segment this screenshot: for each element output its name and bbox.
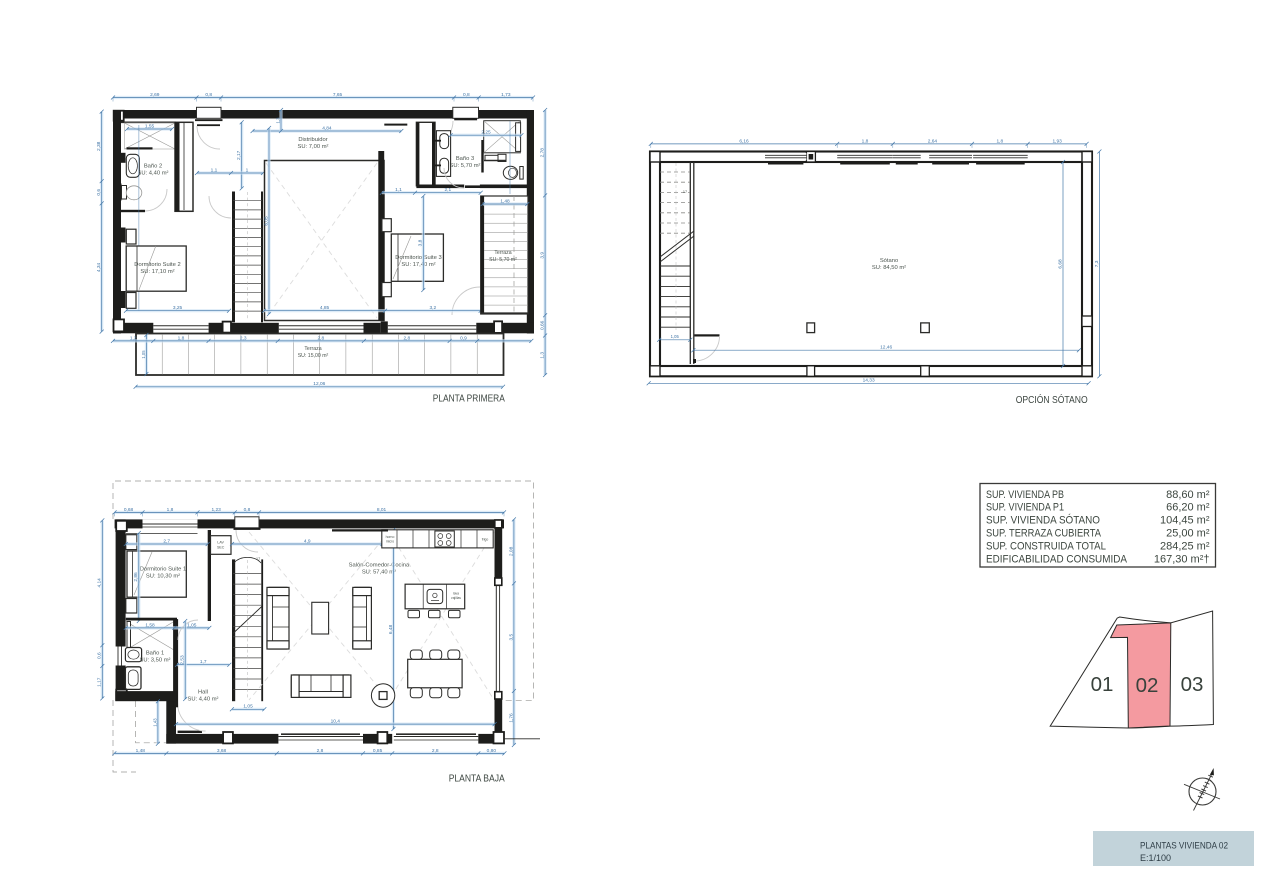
svg-text:SUP. VIVIENDA P1: SUP. VIVIENDA P1: [986, 502, 1064, 514]
svg-text:micro: micro: [386, 540, 394, 544]
svg-text:PLANTAS VIVIENDA 02: PLANTAS VIVIENDA 02: [1140, 841, 1228, 851]
svg-text:1,8: 1,8: [167, 507, 174, 513]
svg-text:1,1: 1,1: [395, 187, 402, 193]
svg-text:2,78: 2,78: [540, 148, 546, 158]
svg-text:Terraza: Terraza: [304, 346, 321, 352]
svg-text:4,14: 4,14: [97, 578, 103, 588]
svg-text:167,30 m²†: 167,30 m²†: [1154, 553, 1210, 565]
svg-text:0,8: 0,8: [205, 92, 212, 98]
svg-text:03: 03: [1181, 673, 1204, 696]
svg-text:2,1: 2,1: [445, 187, 452, 193]
svg-text:horno: horno: [386, 535, 395, 539]
svg-text:3,68: 3,68: [217, 748, 227, 754]
svg-text:1,17: 1,17: [97, 677, 103, 687]
svg-text:E:1/100: E:1/100: [1140, 853, 1171, 863]
svg-text:0,9: 0,9: [460, 335, 467, 341]
svg-text:frigo: frigo: [482, 538, 489, 542]
svg-text:01: 01: [1091, 673, 1114, 696]
svg-text:Baño 3: Baño 3: [456, 156, 474, 162]
svg-text:Dormitorio Suite 3: Dormitorio Suite 3: [395, 255, 441, 261]
svg-text:1,48: 1,48: [500, 198, 510, 204]
svg-text:1,76: 1,76: [508, 713, 514, 723]
svg-text:Dormitorio Suite 2: Dormitorio Suite 2: [134, 262, 180, 268]
svg-text:4,34: 4,34: [96, 263, 102, 273]
svg-text:3,5: 3,5: [508, 634, 514, 641]
svg-text:0,8: 0,8: [244, 507, 251, 513]
svg-text:SU: 10,30 m²: SU: 10,30 m²: [146, 574, 180, 580]
svg-text:SU: 57,40 m²: SU: 57,40 m²: [362, 570, 396, 576]
svg-text:2,86: 2,86: [133, 572, 139, 582]
svg-text:SUP. VIVIENDA SÓTANO: SUP. VIVIENDA SÓTANO: [986, 514, 1100, 527]
svg-text:SU: 4,40 m²: SU: 4,40 m²: [138, 171, 169, 177]
svg-text:SU: 17,40 m²: SU: 17,40 m²: [401, 262, 435, 268]
svg-text:SUP. TERRAZA CUBIERTA: SUP. TERRAZA CUBIERTA: [986, 528, 1102, 540]
svg-text:SU: 15,00 m²: SU: 15,00 m²: [298, 353, 329, 359]
svg-text:17: 17: [256, 557, 260, 561]
svg-text:104,45 m²: 104,45 m²: [1160, 515, 1210, 527]
svg-text:3,8: 3,8: [418, 239, 424, 246]
svg-text:2,25: 2,25: [481, 130, 491, 136]
svg-text:12,46: 12,46: [880, 345, 892, 351]
svg-text:4,85: 4,85: [320, 305, 330, 311]
svg-text:0,6: 0,6: [97, 652, 103, 659]
svg-text:SU: 3,50 m²: SU: 3,50 m²: [140, 658, 171, 664]
svg-text:Salón-Comedor-Cocina: Salón-Comedor-Cocina: [349, 563, 410, 569]
svg-text:3,25: 3,25: [173, 305, 183, 311]
svg-text:4,9: 4,9: [304, 538, 311, 544]
svg-text:14,33: 14,33: [863, 378, 875, 384]
svg-text:SUP. VIVIENDA PB: SUP. VIVIENDA PB: [986, 489, 1064, 501]
svg-text:7,65: 7,65: [333, 92, 343, 98]
svg-text:2,8: 2,8: [403, 335, 410, 341]
svg-text:SU: 84,50 m²: SU: 84,50 m²: [872, 265, 906, 271]
svg-text:OPCIÓN SÓTANO: OPCIÓN SÓTANO: [1016, 393, 1088, 406]
svg-text:2,53: 2,53: [180, 655, 186, 665]
svg-text:2,17: 2,17: [236, 150, 242, 160]
svg-text:1,23: 1,23: [211, 507, 221, 513]
svg-text:LAV: LAV: [217, 541, 224, 545]
svg-text:3,9: 3,9: [540, 252, 546, 259]
svg-text:12,06: 12,06: [313, 381, 325, 387]
svg-text:vajillas: vajillas: [451, 596, 461, 600]
svg-text:Sótano: Sótano: [880, 258, 898, 264]
svg-text:66,20 m²: 66,20 m²: [1166, 502, 1210, 514]
svg-text:1,05: 1,05: [187, 622, 197, 628]
svg-text:1: 1: [246, 167, 249, 173]
svg-text:EDIFICABILIDAD CONSUMIDA: EDIFICABILIDAD CONSUMIDA: [986, 553, 1128, 565]
svg-text:Baño 2: Baño 2: [144, 164, 162, 170]
svg-text:PLANTA BAJA: PLANTA BAJA: [449, 773, 505, 785]
svg-text:4,84: 4,84: [322, 125, 332, 131]
svg-text:SU: 7,00 m²: SU: 7,00 m²: [298, 144, 329, 150]
svg-text:6,48: 6,48: [388, 625, 394, 635]
svg-text:7,3: 7,3: [1094, 260, 1100, 267]
svg-text:SU: 4,40 m²: SU: 4,40 m²: [188, 697, 219, 703]
svg-text:1,55: 1,55: [145, 123, 155, 129]
svg-text:17: 17: [683, 190, 687, 194]
svg-text:1,8: 1,8: [862, 138, 869, 144]
svg-text:1,93: 1,93: [1052, 138, 1062, 144]
svg-text:Terraza: Terraza: [494, 250, 511, 256]
svg-text:2,8: 2,8: [432, 748, 439, 754]
svg-text:1,7: 1,7: [200, 659, 207, 665]
svg-text:2,8: 2,8: [318, 335, 325, 341]
svg-text:10,4: 10,4: [331, 719, 341, 725]
svg-text:2,64: 2,64: [928, 138, 938, 144]
svg-text:SU: 17,10 m²: SU: 17,10 m²: [140, 269, 174, 275]
svg-text:1,43: 1,43: [152, 718, 157, 727]
svg-text:1,8: 1,8: [178, 335, 185, 341]
svg-text:3,2: 3,2: [430, 305, 437, 311]
svg-text:Dormitorio Suite 1: Dormitorio Suite 1: [140, 567, 186, 573]
svg-text:0,80: 0,80: [487, 748, 497, 754]
svg-text:0,85: 0,85: [373, 748, 383, 754]
svg-text:6,68: 6,68: [1057, 259, 1063, 269]
svg-text:02: 02: [1136, 674, 1159, 697]
svg-text:1,58: 1,58: [145, 622, 155, 628]
svg-text:2,3: 2,3: [240, 335, 247, 341]
svg-text:SEC: SEC: [217, 546, 225, 550]
svg-text:0,8: 0,8: [463, 92, 470, 98]
svg-text:284,25 m²: 284,25 m²: [1160, 540, 1210, 552]
svg-text:SU: 5,70 m²: SU: 5,70 m²: [450, 163, 481, 169]
svg-text:88,60 m²: 88,60 m²: [1166, 489, 1210, 501]
svg-text:2,7: 2,7: [163, 538, 170, 544]
svg-text:1,48: 1,48: [136, 748, 146, 754]
svg-text:1,73: 1,73: [501, 92, 511, 98]
svg-text:6,05: 6,05: [263, 216, 269, 226]
svg-text:2,38: 2,38: [96, 141, 102, 151]
svg-text:SUP. CONSTRUIDA TOTAL: SUP. CONSTRUIDA TOTAL: [986, 540, 1106, 552]
svg-text:0,66: 0,66: [540, 320, 546, 330]
svg-text:1,05: 1,05: [671, 334, 680, 339]
svg-text:Baño 1: Baño 1: [146, 651, 164, 657]
svg-text:2,69: 2,69: [150, 92, 160, 98]
svg-text:8,01: 8,01: [377, 507, 387, 513]
svg-text:2,8: 2,8: [317, 748, 324, 754]
svg-text:1,05: 1,05: [141, 350, 146, 359]
svg-text:1,3: 1,3: [540, 352, 546, 359]
svg-text:PLANTA PRIMERA: PLANTA PRIMERA: [433, 393, 505, 405]
svg-text:1,3: 1,3: [275, 117, 280, 124]
svg-text:SU: 5,70 m²: SU: 5,70 m²: [489, 257, 517, 263]
svg-text:1,05: 1,05: [243, 704, 253, 710]
svg-text:6,16: 6,16: [739, 138, 749, 144]
svg-text:Hall: Hall: [198, 690, 208, 696]
svg-text:25,00 m²: 25,00 m²: [1166, 528, 1210, 540]
svg-text:1,1: 1,1: [211, 167, 218, 173]
svg-text:1,8: 1,8: [997, 138, 1004, 144]
svg-text:Distribuidor: Distribuidor: [298, 137, 327, 143]
svg-text:0,6: 0,6: [96, 189, 102, 196]
svg-text:2,08: 2,08: [508, 546, 514, 556]
svg-text:0,68: 0,68: [124, 507, 134, 513]
svg-text:1,2: 1,2: [130, 335, 137, 341]
